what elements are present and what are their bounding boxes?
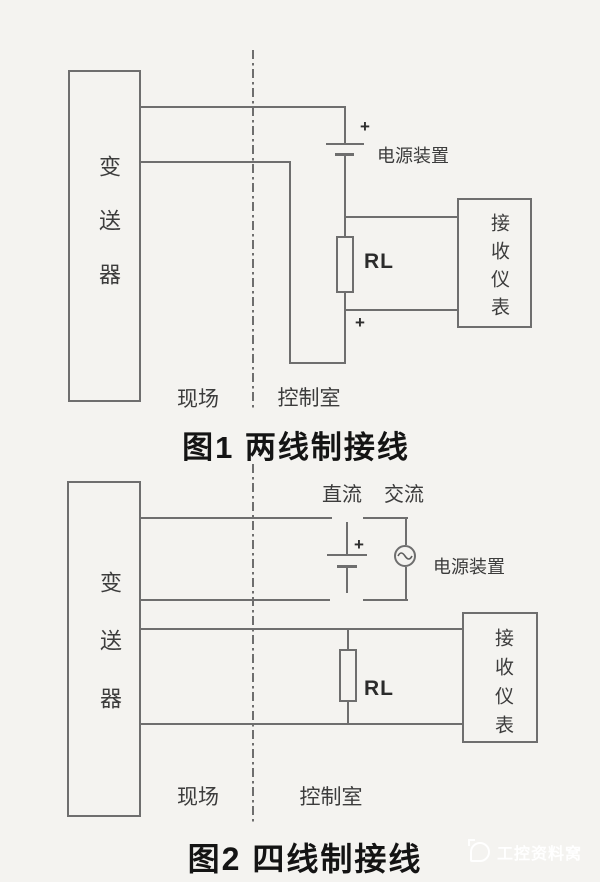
fig2-ac-lead-top (405, 518, 407, 545)
fig2-power-supply-label: 电源装置 (433, 553, 505, 579)
fig2-rl-lead-bottom (347, 702, 349, 724)
fig2-battery-icon (327, 554, 367, 556)
fig2-battery-stem-top (346, 522, 348, 554)
fig1-rl-lead-bottom (344, 293, 346, 309)
fig2-transmitter-label: 变送器 (93, 571, 125, 745)
fig2-battery-stem-bottom (346, 568, 348, 593)
watermark: 工控资料窝 (470, 840, 582, 864)
fig1-control-room-label: 控制室 (278, 382, 341, 412)
fig2-rl-resistor-icon (339, 649, 357, 702)
fig1-rl-label: RL (364, 250, 394, 274)
fig1-return-drop (344, 310, 346, 363)
fig1-title: 图1 两线制接线 (182, 422, 410, 467)
fig2-polarity-plus: + (354, 536, 364, 553)
fig2-rl-lead-top (347, 630, 349, 649)
fig1-receiver-label: 接收仪表 (485, 213, 512, 325)
fig1-wire-to-receiver-bottom (344, 309, 459, 311)
fig1-polarity-plus-top: + (360, 118, 370, 135)
fig2-signal-wire-bottom (141, 723, 462, 725)
fig1-wire-bottom (141, 161, 291, 163)
fig2-power-wire-bottom-left (141, 599, 330, 601)
fig1-wire-to-receiver-top (344, 216, 459, 218)
fig1-battery-stem (344, 156, 346, 217)
fig2-ac-lead-bottom (405, 567, 407, 600)
fig2-ac-source-icon (394, 545, 416, 567)
fig1-battery-icon (326, 143, 364, 145)
fig2-signal-wire-top (141, 628, 462, 630)
fig2-power-wire-top-left (141, 517, 332, 519)
watermark-text: 工控资料窝 (497, 840, 582, 864)
fig2-control-room-label: 控制室 (300, 781, 363, 811)
watermark-logo-icon (470, 842, 490, 862)
fig2-power-wire-top-right (363, 517, 408, 519)
fig2-receiver-label: 接收仪表 (489, 628, 516, 744)
fig1-rl-resistor-icon (336, 236, 354, 293)
fig1-rl-lead-top (344, 218, 346, 236)
diagram-canvas: 变送器 + 电源装置 RL + 接收仪表 现场 控制室 (0, 0, 600, 882)
fig1-polarity-plus-bottom: + (355, 314, 365, 331)
fig2-field-zone-label: 现场 (177, 781, 219, 811)
fig2-rl-label: RL (364, 677, 394, 701)
fig2-ac-label: 交流 (384, 478, 424, 507)
fig1-boundary-dashed-line (252, 50, 254, 410)
fig1-field-zone-label: 现场 (177, 383, 219, 413)
fig1-return-bottom (289, 362, 346, 364)
fig1-wire-top-drop (344, 107, 346, 144)
fig1-transmitter-label: 变送器 (92, 155, 124, 317)
fig1-return-riser (289, 162, 291, 364)
fig2-title: 图2 四线制接线 (188, 834, 423, 880)
fig2-dc-label: 直流 (322, 478, 362, 507)
fig2-ac-sine-wave (397, 551, 413, 561)
fig2-power-wire-bottom-right (363, 599, 408, 601)
fig1-power-supply-label: 电源装置 (377, 142, 449, 168)
fig1-wire-top (141, 106, 346, 108)
